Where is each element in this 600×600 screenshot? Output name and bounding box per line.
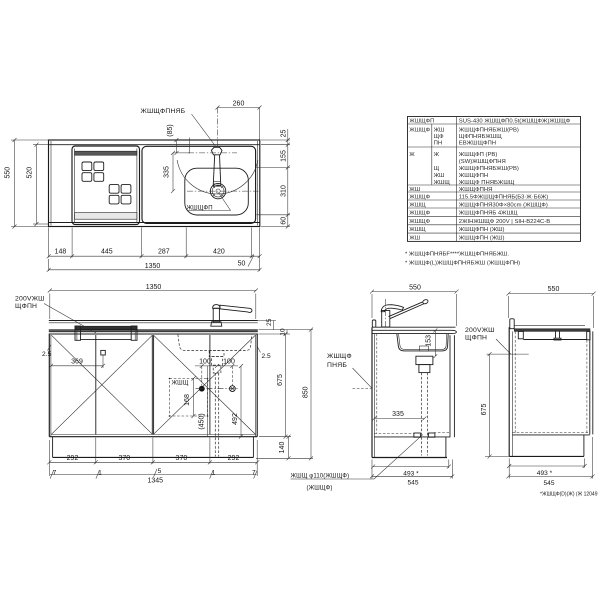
svg-text:545: 545	[543, 480, 554, 487]
svg-text:200VЖШ: 200VЖШ	[15, 296, 45, 303]
svg-text:ЖШ: ЖШ	[409, 187, 420, 193]
svg-text:(SW)ЖШЩФПНЯ: (SW)ЖШЩФПНЯ	[459, 159, 506, 165]
svg-text:292: 292	[67, 455, 79, 462]
svg-text:335: 335	[392, 411, 404, 418]
svg-text:ЖШЩФ: ЖШЩФ	[409, 194, 430, 200]
svg-text:ЖШЩФПНЯБ: ЖШЩФПНЯБ	[141, 108, 186, 115]
svg-text:292: 292	[228, 455, 240, 462]
svg-text:100: 100	[223, 359, 235, 366]
svg-text:ЖШЩФПНЯБЖШ(PB): ЖШЩФПНЯБЖШ(PB)	[459, 166, 519, 172]
svg-text:ЖШЩФП (PB): ЖШЩФП (PB)	[459, 152, 498, 158]
svg-text:ПНЯБ: ПНЯБ	[327, 362, 347, 369]
svg-text:260: 260	[233, 101, 245, 108]
svg-text:SUS-430 ЖШЩФП0.5t(ЖШЩФЖ)ЖШЩФ: SUS-430 ЖШЩФП0.5t(ЖШЩФЖ)ЖШЩФ	[459, 118, 571, 124]
svg-text:ЖШЩФ: ЖШЩФ	[409, 219, 430, 225]
svg-text:ЖШЩФПНЯ30Φ×80cm (ЖШЩФ): ЖШЩФПНЯ30Φ×80cm (ЖШЩФ)	[459, 202, 548, 208]
svg-text:ЖШЩФПН: ЖШЩФПН	[459, 173, 488, 179]
svg-text:370: 370	[118, 455, 130, 462]
svg-text:115.5ΦЖШЩФПНЯБ(Б3·Ж·Б6Ж): 115.5ΦЖШЩФПНЯБ(Б3·Ж·Б6Ж)	[459, 194, 548, 200]
svg-text:168: 168	[184, 394, 191, 406]
svg-text:ЖШЩФ: ЖШЩФ	[409, 127, 430, 133]
svg-text:492: 492	[232, 413, 239, 425]
svg-text:ЖШЩФПНЯБ 4ЖШЩ: ЖШЩФПНЯБ 4ЖШЩ	[459, 210, 518, 216]
svg-text:200VЖШ: 200VЖШ	[465, 327, 495, 334]
svg-text:ЖШЩ: ЖШЩ	[409, 202, 426, 208]
svg-text:ЖШЩФ: ЖШЩФ	[327, 353, 352, 360]
svg-text:ЖШЩФПН (ЖШ): ЖШЩФПН (ЖШ)	[459, 227, 505, 233]
svg-text:ЩФПН: ЩФПН	[15, 303, 37, 310]
svg-text:ЖШ: ЖШ	[434, 127, 445, 133]
svg-text:ЖШЩФП: ЖШЩФП	[409, 118, 434, 124]
svg-text:ПН: ПН	[434, 141, 443, 147]
svg-text:310: 310	[280, 185, 287, 197]
svg-text:7: 7	[252, 470, 256, 477]
svg-text:1350: 1350	[145, 263, 161, 270]
svg-text:ЖШЩ: ЖШЩ	[172, 381, 189, 387]
svg-text:370: 370	[176, 455, 188, 462]
svg-text:ЖШЩ φ110(ЖШЩФ): ЖШЩ φ110(ЖШЩФ)	[291, 473, 350, 479]
svg-text:100: 100	[199, 359, 211, 366]
svg-text:1345: 1345	[148, 477, 164, 484]
svg-text:Ж: Ж	[434, 152, 440, 158]
svg-text:(ЖШЩФ): (ЖШЩФ)	[307, 485, 333, 491]
svg-text:550: 550	[5, 167, 12, 179]
svg-text:5: 5	[158, 468, 162, 475]
svg-text:550: 550	[409, 285, 421, 292]
svg-text:520: 520	[27, 167, 34, 179]
svg-text:Щ: Щ	[434, 166, 440, 172]
svg-text:675: 675	[277, 374, 284, 386]
svg-text:287: 287	[158, 249, 170, 256]
svg-text:148: 148	[55, 249, 67, 256]
svg-text:ЖШЩ: ЖШЩ	[434, 180, 451, 186]
svg-text:25: 25	[280, 130, 287, 138]
svg-text:ЖШЩФПНЯБЖШ(PB): ЖШЩФПНЯБЖШ(PB)	[459, 127, 519, 133]
svg-text:ЩФПН: ЩФПН	[465, 335, 487, 342]
svg-text:ЖШЩФПН (ЖШ): ЖШЩФПН (ЖШ)	[459, 235, 505, 241]
svg-text:60: 60	[280, 217, 287, 225]
svg-text:369: 369	[71, 358, 83, 365]
svg-text:1350: 1350	[146, 284, 162, 291]
svg-text:* ЖШЩФПНЯБF****ЖШЩФПНЯБЖШ.: * ЖШЩФПНЯБF****ЖШЩФПНЯБЖШ.	[405, 252, 509, 258]
svg-text:1: 1	[98, 470, 102, 477]
svg-text:*ЖШЩФ(D)(Ж) (Ж 12049: *ЖШЩФ(D)(Ж) (Ж 12049	[540, 492, 598, 498]
svg-text:493 *: 493 *	[537, 470, 553, 477]
svg-text:445: 445	[101, 249, 113, 256]
svg-text:545: 545	[407, 479, 418, 486]
svg-text:EBЖШЩФПН: EBЖШЩФПН	[459, 141, 496, 147]
svg-text:550: 550	[548, 286, 560, 293]
svg-text:ЖШЩФПНЯ: ЖШЩФПНЯ	[459, 187, 493, 193]
svg-text:2.5: 2.5	[262, 353, 271, 360]
svg-text:ЖШ: ЖШ	[434, 173, 445, 179]
svg-text:* ЖШЩФ(L)ЖШЩФПНЯБЖШ (ЖШЩФПН): * ЖШЩФ(L)ЖШЩФПНЯБЖШ (ЖШЩФПН)	[405, 261, 520, 267]
svg-text:ЖШ: ЖШ	[409, 235, 420, 241]
svg-text:ЖШЩФ ПНЯБЖШЩ: ЖШЩФ ПНЯБЖШЩ	[459, 180, 515, 186]
svg-text:155: 155	[280, 150, 287, 162]
svg-text:ЩФПНЯБЖШЩ: ЩФПНЯБЖШЩ	[459, 134, 502, 140]
svg-text:Ж: Ж	[409, 152, 415, 158]
svg-text:ЖШЩФ: ЖШЩФ	[409, 210, 430, 216]
svg-text:(450): (450)	[198, 413, 205, 429]
svg-text:850: 850	[302, 386, 309, 398]
svg-text:335: 335	[163, 166, 170, 178]
svg-text:2ЖIHЖШЩФ 200V | SIH-B224C-B: 2ЖIHЖШЩФ 200V | SIH-B224C-B	[459, 219, 550, 225]
svg-text:153: 153	[426, 335, 433, 347]
svg-text:140: 140	[279, 442, 286, 454]
svg-text:2.5: 2.5	[42, 351, 51, 358]
svg-text:420: 420	[213, 249, 225, 256]
svg-text:50: 50	[238, 261, 246, 268]
svg-text:25: 25	[266, 318, 273, 326]
svg-text:(85): (85)	[167, 124, 174, 136]
svg-text:ЩФ: ЩФ	[434, 134, 445, 140]
svg-text:675: 675	[481, 404, 488, 416]
svg-text:ЖШЩ: ЖШЩ	[409, 227, 426, 233]
